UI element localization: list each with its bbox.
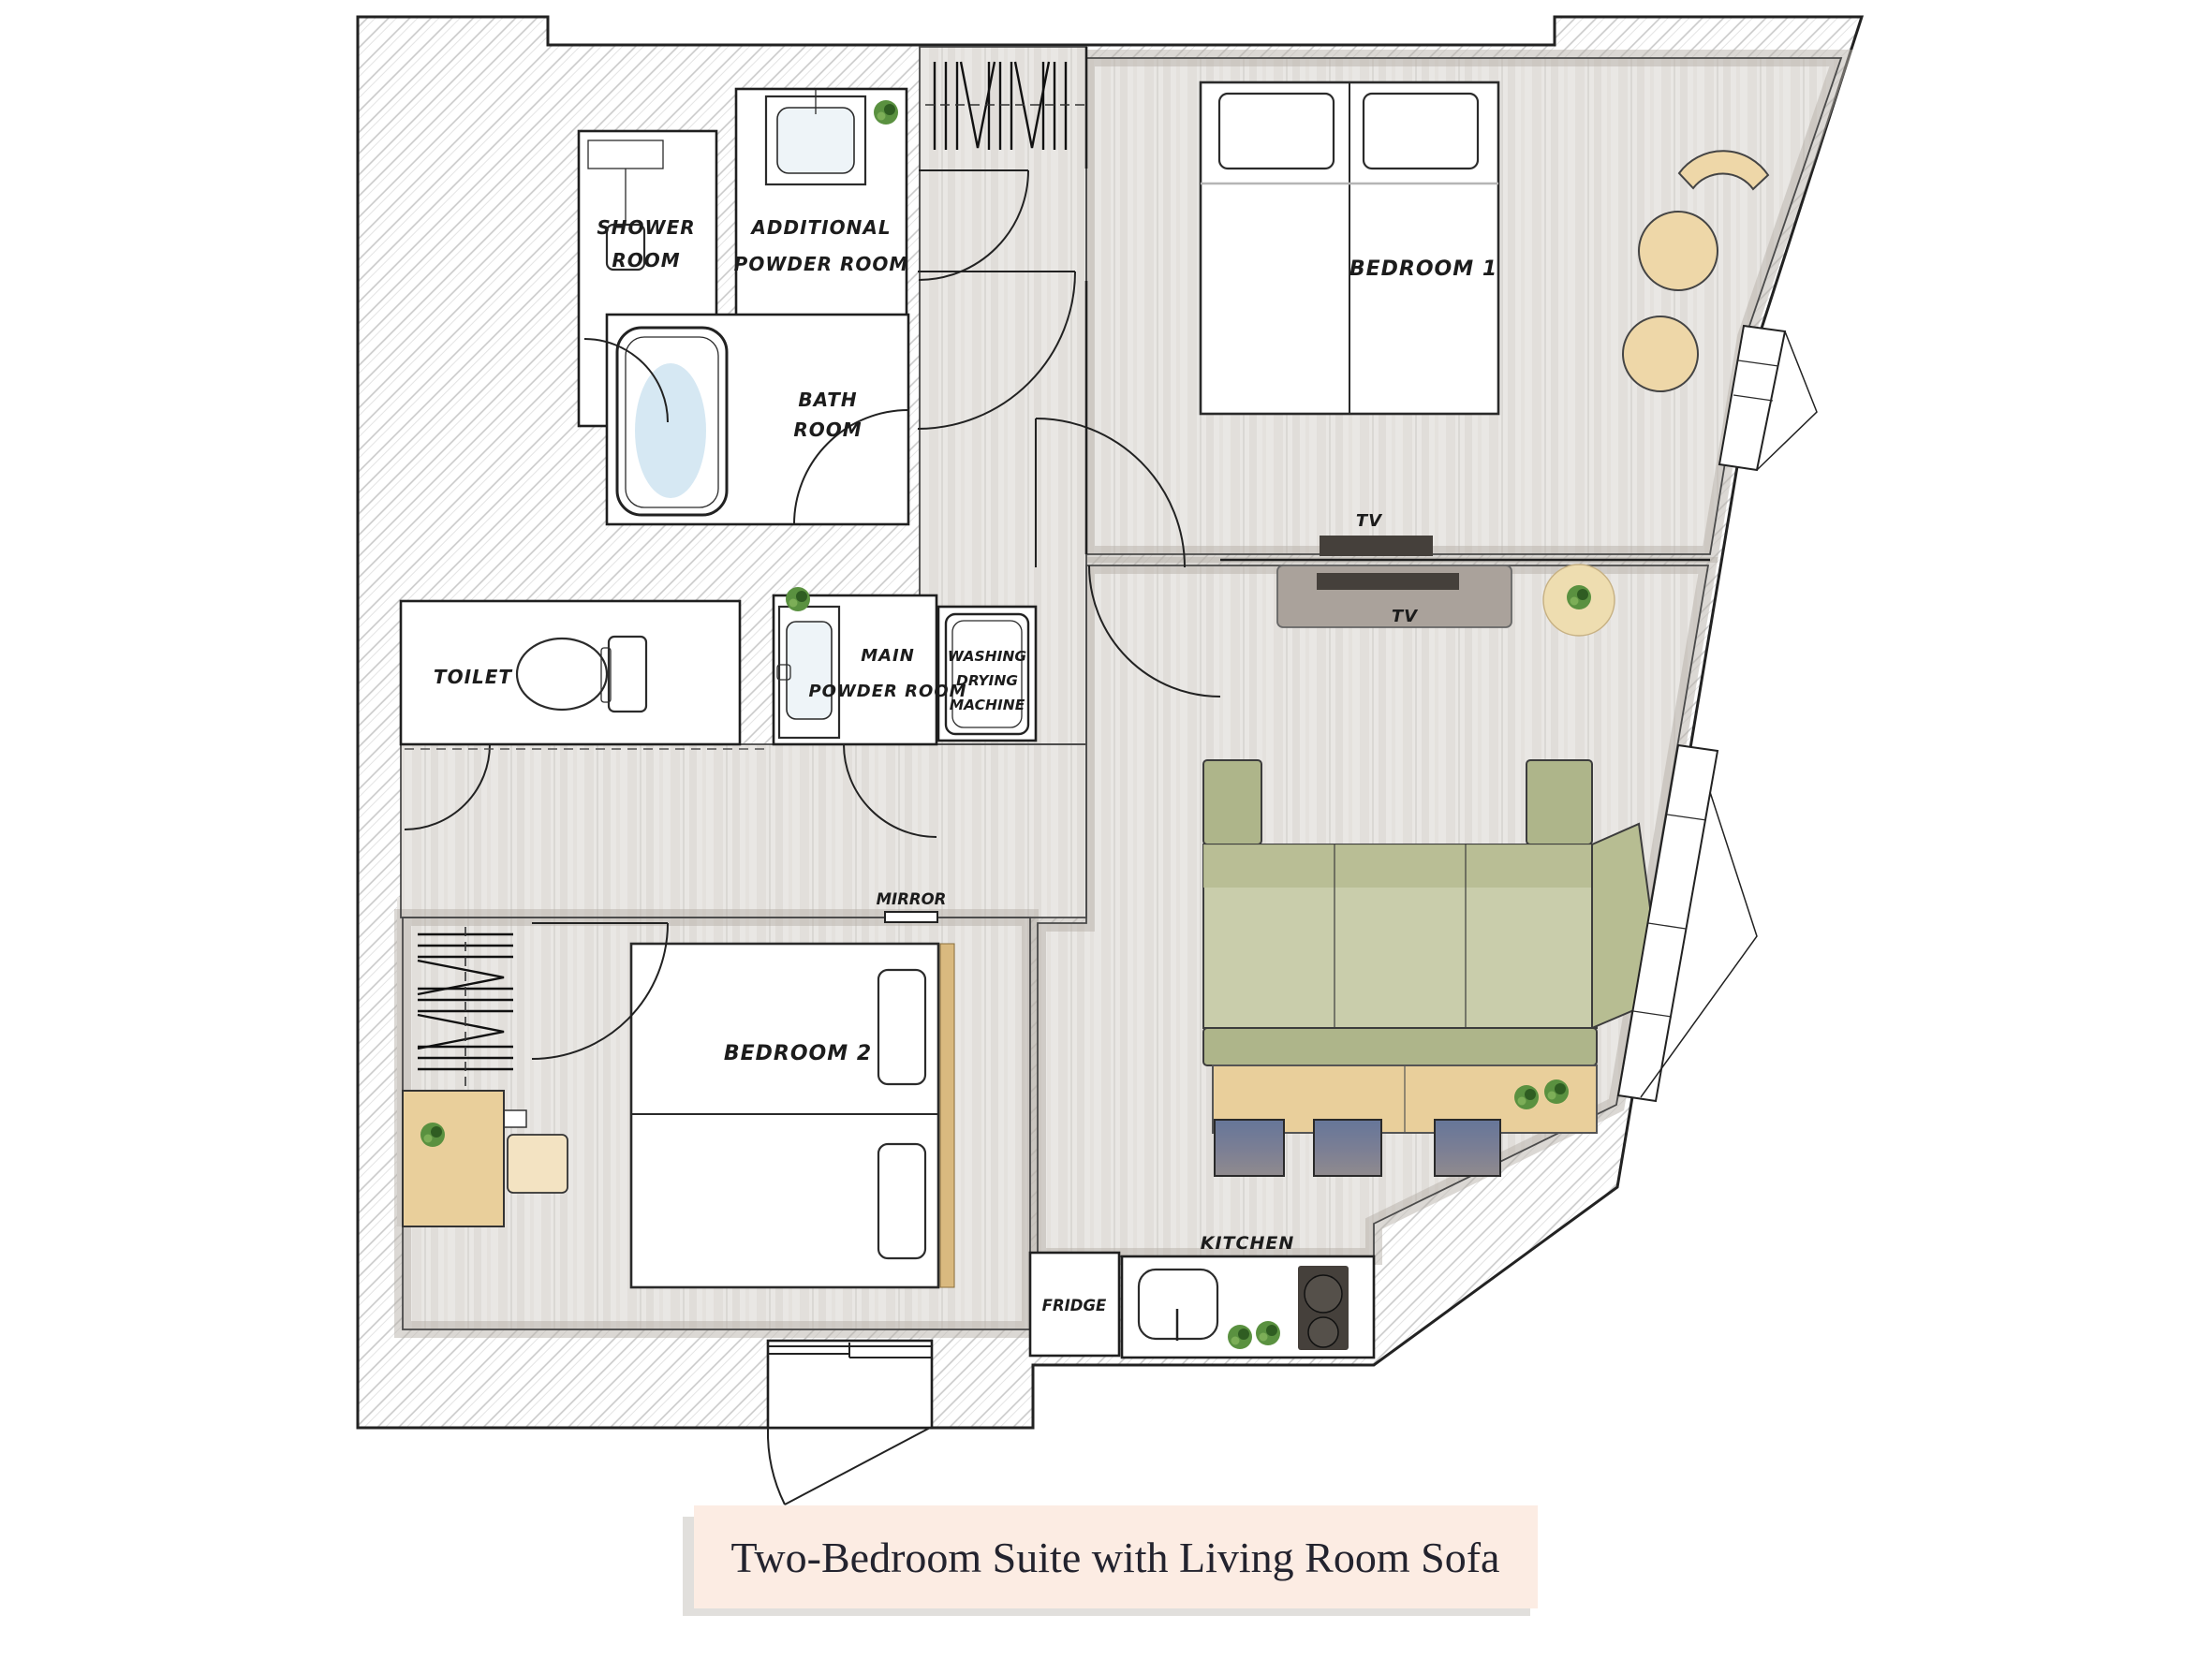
burner: [1305, 1275, 1342, 1313]
main-sink-basin: [787, 622, 832, 719]
tv-bar-living: [1317, 573, 1459, 590]
main-powder-label-2: POWDER ROOM: [808, 682, 966, 701]
bath-room-label-1: BATH: [798, 389, 857, 411]
sofa-front-edge: [1203, 1028, 1597, 1065]
pillow: [1219, 94, 1334, 169]
toilet-label: TOILET: [434, 666, 512, 688]
stool: [1314, 1120, 1381, 1176]
bedroom2-label: BEDROOM 2: [724, 1042, 872, 1065]
powder-sink-basin: [777, 108, 854, 173]
plant-icon: [1544, 1079, 1569, 1104]
plant-icon: [420, 1123, 445, 1147]
caption: Two-Bedroom Suite with Living Room Sofa: [683, 1505, 1538, 1616]
round-stool: [1623, 316, 1698, 391]
mirror: [885, 912, 937, 922]
sofa-back-right: [1526, 760, 1592, 844]
kitchen-label: KITCHEN: [1201, 1233, 1294, 1254]
shower-room-label-2: ROOM: [612, 249, 680, 272]
shower-room-label-1: SHOWER: [597, 216, 695, 239]
plant-icon: [1256, 1321, 1280, 1345]
stool: [1215, 1120, 1284, 1176]
headboard: [940, 944, 954, 1287]
bedroom1-label: BEDROOM 1: [1349, 257, 1497, 281]
additional-powder-label-1: ADDITIONAL: [749, 216, 891, 239]
toilet-tank: [609, 637, 646, 712]
desk: [403, 1091, 504, 1226]
additional-powder-label-2: POWDER ROOM: [734, 253, 909, 275]
desk-chair: [508, 1135, 568, 1193]
floorplan-page: SHOWER ROOM ADDITIONAL POWDER ROOM BATH …: [0, 0, 2212, 1659]
main-powder-fixtures: [777, 587, 839, 738]
plant-icon: [1567, 585, 1591, 609]
floorplan-drawing: SHOWER ROOM ADDITIONAL POWDER ROOM BATH …: [0, 0, 2212, 1659]
stool: [1435, 1120, 1500, 1176]
plant-icon: [874, 100, 898, 125]
pillow: [1364, 94, 1478, 169]
pillow: [878, 1144, 925, 1258]
plant-icon: [1514, 1085, 1539, 1109]
main-powder-label-1: MAIN: [861, 646, 915, 666]
mirror-label: MIRROR: [877, 890, 947, 908]
tv-bedroom-label: TV: [1356, 511, 1383, 531]
tv-living-label: TV: [1392, 607, 1419, 626]
sofa-seat-shade: [1203, 844, 1597, 888]
washing-label-3: MACHINE: [950, 697, 1025, 713]
fridge-label: FRIDGE: [1042, 1297, 1107, 1314]
tv-bar-bedroom1: [1320, 536, 1433, 556]
door-leaf-entrance: [785, 1428, 930, 1505]
sofa-back-left: [1203, 760, 1261, 844]
plant-icon: [1228, 1325, 1252, 1349]
corridor-floor: [401, 744, 1086, 918]
round-table: [1639, 212, 1718, 290]
caption-text: Two-Bedroom Suite with Living Room Sofa: [731, 1534, 1500, 1581]
bath-room-label-2: ROOM: [793, 418, 862, 441]
burner: [1308, 1317, 1338, 1347]
washing-label-1: WASHING: [948, 648, 1026, 665]
door-arc-entrance: [768, 1428, 785, 1505]
toilet-fixtures: [517, 637, 646, 712]
washing-label-2: DRYING: [956, 672, 1018, 689]
bath-water: [635, 363, 706, 498]
toilet-bowl: [517, 639, 607, 710]
plant-icon: [786, 587, 810, 611]
pillow: [878, 970, 925, 1084]
